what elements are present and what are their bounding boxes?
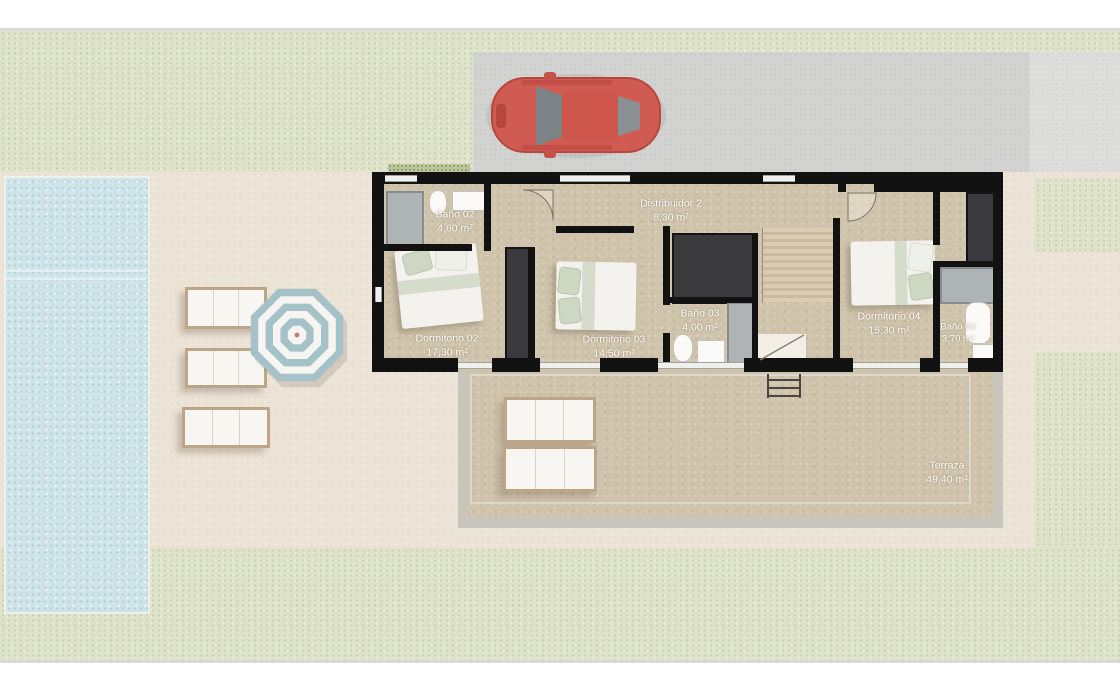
room-name: Terraza <box>926 459 967 473</box>
exterior-steps-ladder <box>768 374 800 398</box>
room-label-terraza: Terraza 49,40 m² <box>926 459 967 486</box>
understair-diagonal <box>760 335 804 360</box>
room-label-distribuidor2: Distribuidor 2 8,30 m² <box>640 197 702 224</box>
room-label-dormitorio04: Dormitorio 04 15,30 m² <box>857 310 920 337</box>
room-name: Dormitorio 02 <box>415 332 478 346</box>
overlay-graphics <box>0 0 1120 700</box>
room-label-bano04: Baño 04 3,70 m² <box>940 322 975 347</box>
room-area: 4,00 m² <box>680 321 719 335</box>
room-area: 15,30 m² <box>857 324 920 338</box>
parasol-umbrella-icon <box>251 289 347 387</box>
door-arc <box>848 193 876 221</box>
room-label-bano02: Baño 02 4,60 m² <box>435 208 474 235</box>
room-area: 4,60 m² <box>435 222 474 236</box>
room-area: 8,30 m² <box>640 211 702 225</box>
red-car-top-view-icon <box>486 72 666 158</box>
room-name: Dormitorio 03 <box>582 333 645 347</box>
room-name: Baño 03 <box>680 307 719 321</box>
room-label-bano03: Baño 03 4,00 m² <box>680 307 719 334</box>
room-area: 14,50 m² <box>582 347 645 361</box>
room-name: Baño 02 <box>435 208 474 222</box>
door-arc <box>523 190 553 220</box>
room-name: Distribuidor 2 <box>640 197 702 211</box>
room-name: Dormitorio 04 <box>857 310 920 324</box>
room-name: Baño 04 <box>940 322 975 334</box>
room-area: 49,40 m² <box>926 473 967 487</box>
room-area: 17,30 m² <box>415 346 478 360</box>
floor-plan-scene: Baño 02 4,60 m² Distribuidor 2 8,30 m² D… <box>0 0 1120 700</box>
room-area: 3,70 m² <box>940 334 975 346</box>
room-label-dormitorio03: Dormitorio 03 14,50 m² <box>582 333 645 360</box>
room-label-dormitorio02: Dormitorio 02 17,30 m² <box>415 332 478 359</box>
